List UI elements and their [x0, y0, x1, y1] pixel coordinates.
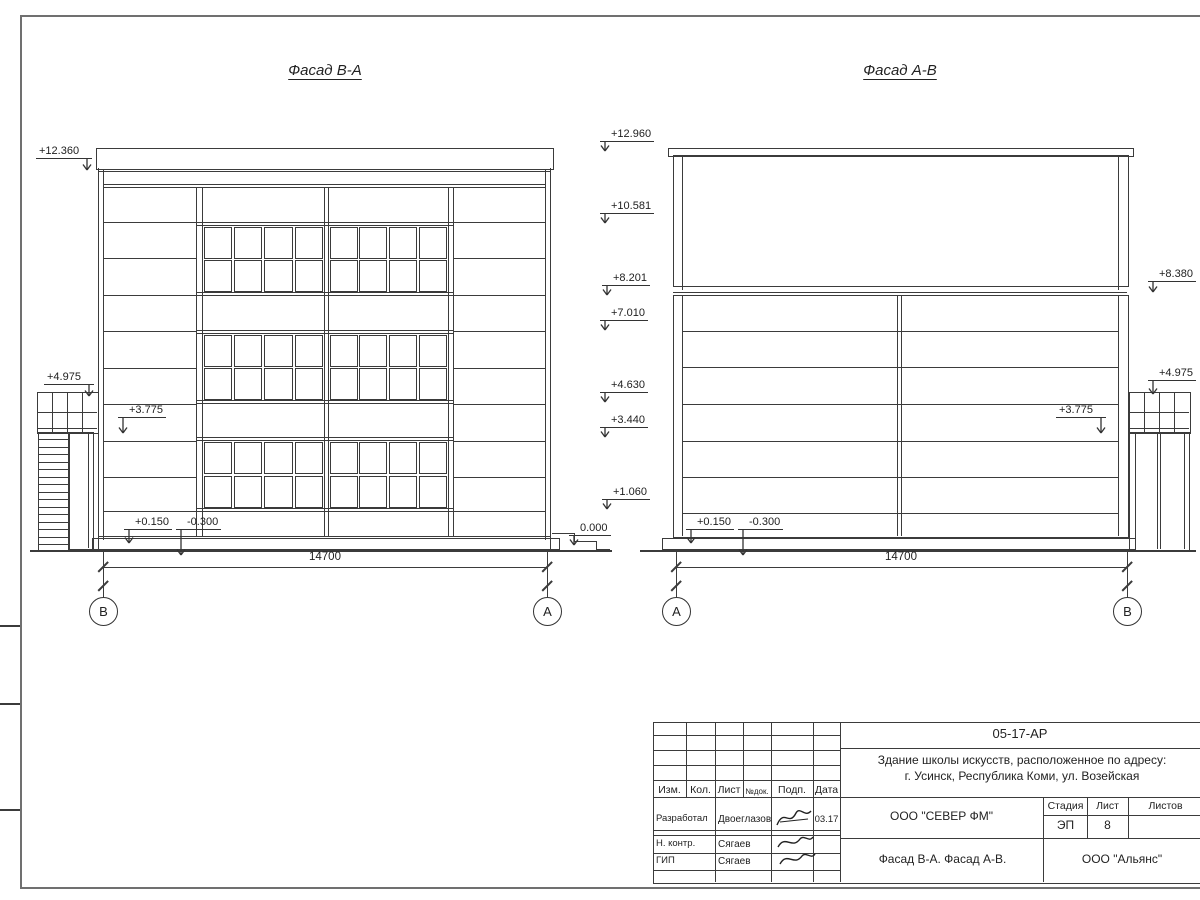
elevation-mark-1060: +1.060 [602, 486, 650, 500]
col-list: Лист [715, 784, 743, 796]
sheet-label: Лист [1088, 800, 1127, 812]
dimension-label-right: 14700 [861, 551, 941, 564]
elevation-mark-12360: +12.360 [36, 145, 92, 159]
axis-bubble-a-left: А [533, 597, 562, 626]
col-ndok: №док. [743, 787, 771, 796]
axis-bubble-b-right: В [1113, 597, 1142, 626]
dimension-label-left: 14700 [285, 551, 365, 564]
signature-nkontr-gip [772, 833, 816, 871]
level-arrow-icon [685, 530, 697, 545]
level-arrow-icon [117, 418, 129, 435]
sheet-title: Фасад В-А. Фасад А-В. [845, 853, 1040, 867]
elevation-mark-0000: 0.000 [569, 522, 611, 536]
elevation-mark-8201: +8.201 [602, 272, 650, 286]
drawing-sheet: Фасад В-А Фасад А-В +12.360 +4.975 +3.77… [0, 0, 1200, 900]
elevation-mark-0150-right: +0.150 [686, 516, 734, 530]
axis-bubble-a-right: А [662, 597, 691, 626]
level-arrow-icon [1147, 381, 1159, 396]
stage-value: ЭП [1044, 819, 1087, 833]
row-name-razrabotal: Двоеглазов [718, 814, 771, 826]
project-line-1: Здание школы искусств, расположенное по … [848, 754, 1196, 768]
row-role-gip: ГИП [656, 856, 675, 867]
level-arrow-icon [599, 321, 611, 332]
level-arrow-icon [599, 142, 611, 153]
level-arrow-icon [1147, 282, 1159, 294]
facade-av-title: Фасад А-В [830, 62, 970, 79]
level-arrow-icon [83, 385, 95, 398]
elevation-mark-0150-left: +0.150 [124, 516, 172, 530]
level-arrow-icon [123, 530, 135, 545]
elevation-mark-4630: +4.630 [600, 379, 648, 393]
row-role-nkontr: Н. контр. [656, 839, 695, 850]
level-arrow-icon [568, 536, 580, 547]
elevation-mark-3440: +3.440 [600, 414, 648, 428]
elevation-mark-4975-right: +4.975 [1148, 367, 1196, 381]
row-name-gip: Сягаев [718, 856, 751, 868]
signature-razrabotal [774, 806, 814, 830]
elevation-mark-8380: +8.380 [1148, 268, 1196, 282]
row-date-razrabotal: 03.17 [813, 815, 840, 826]
level-arrow-icon [1095, 418, 1107, 435]
elevation-mark-m0300-left: -0.300 [176, 516, 221, 530]
col-data: Дата [813, 784, 840, 796]
project-line-2: г. Усинск, Республика Коми, ул. Возейска… [848, 770, 1196, 784]
row-name-nkontr: Сягаев [718, 839, 751, 851]
stage-label: Стадия [1044, 800, 1087, 812]
level-arrow-icon [737, 530, 749, 557]
col-podp: Подп. [771, 784, 813, 796]
doc-number: 05-17-АР [845, 727, 1195, 742]
axis-bubble-b-left: В [89, 597, 118, 626]
row-role-razrabotal: Разработал [656, 814, 708, 825]
elevation-mark-12960: +12.960 [600, 128, 654, 142]
level-arrow-icon [175, 530, 187, 557]
designer-company: ООО "СЕВЕР ФМ" [843, 810, 1040, 824]
level-arrow-icon [601, 500, 613, 511]
elevation-mark-4975-left: +4.975 [44, 371, 94, 385]
sheets-label: Листов [1129, 800, 1200, 812]
level-arrow-icon [599, 393, 611, 404]
level-arrow-icon [599, 214, 611, 225]
sheet-value: 8 [1088, 819, 1127, 833]
level-arrow-icon [601, 286, 613, 297]
col-izm: Изм. [653, 784, 686, 796]
elevation-mark-7010: +7.010 [600, 307, 648, 321]
level-arrow-icon [81, 159, 93, 172]
elevation-mark-3775-left: +3.775 [118, 404, 166, 418]
elevation-mark-10581: +10.581 [600, 200, 654, 214]
col-kol: Кол. [686, 784, 715, 796]
elevation-mark-3775-right: +3.775 [1056, 404, 1106, 418]
elevation-mark-m0300-right: -0.300 [738, 516, 783, 530]
facade-va-title: Фасад В-А [255, 62, 395, 79]
contractor: ООО "Альянс" [1046, 853, 1198, 867]
level-arrow-icon [599, 428, 611, 439]
